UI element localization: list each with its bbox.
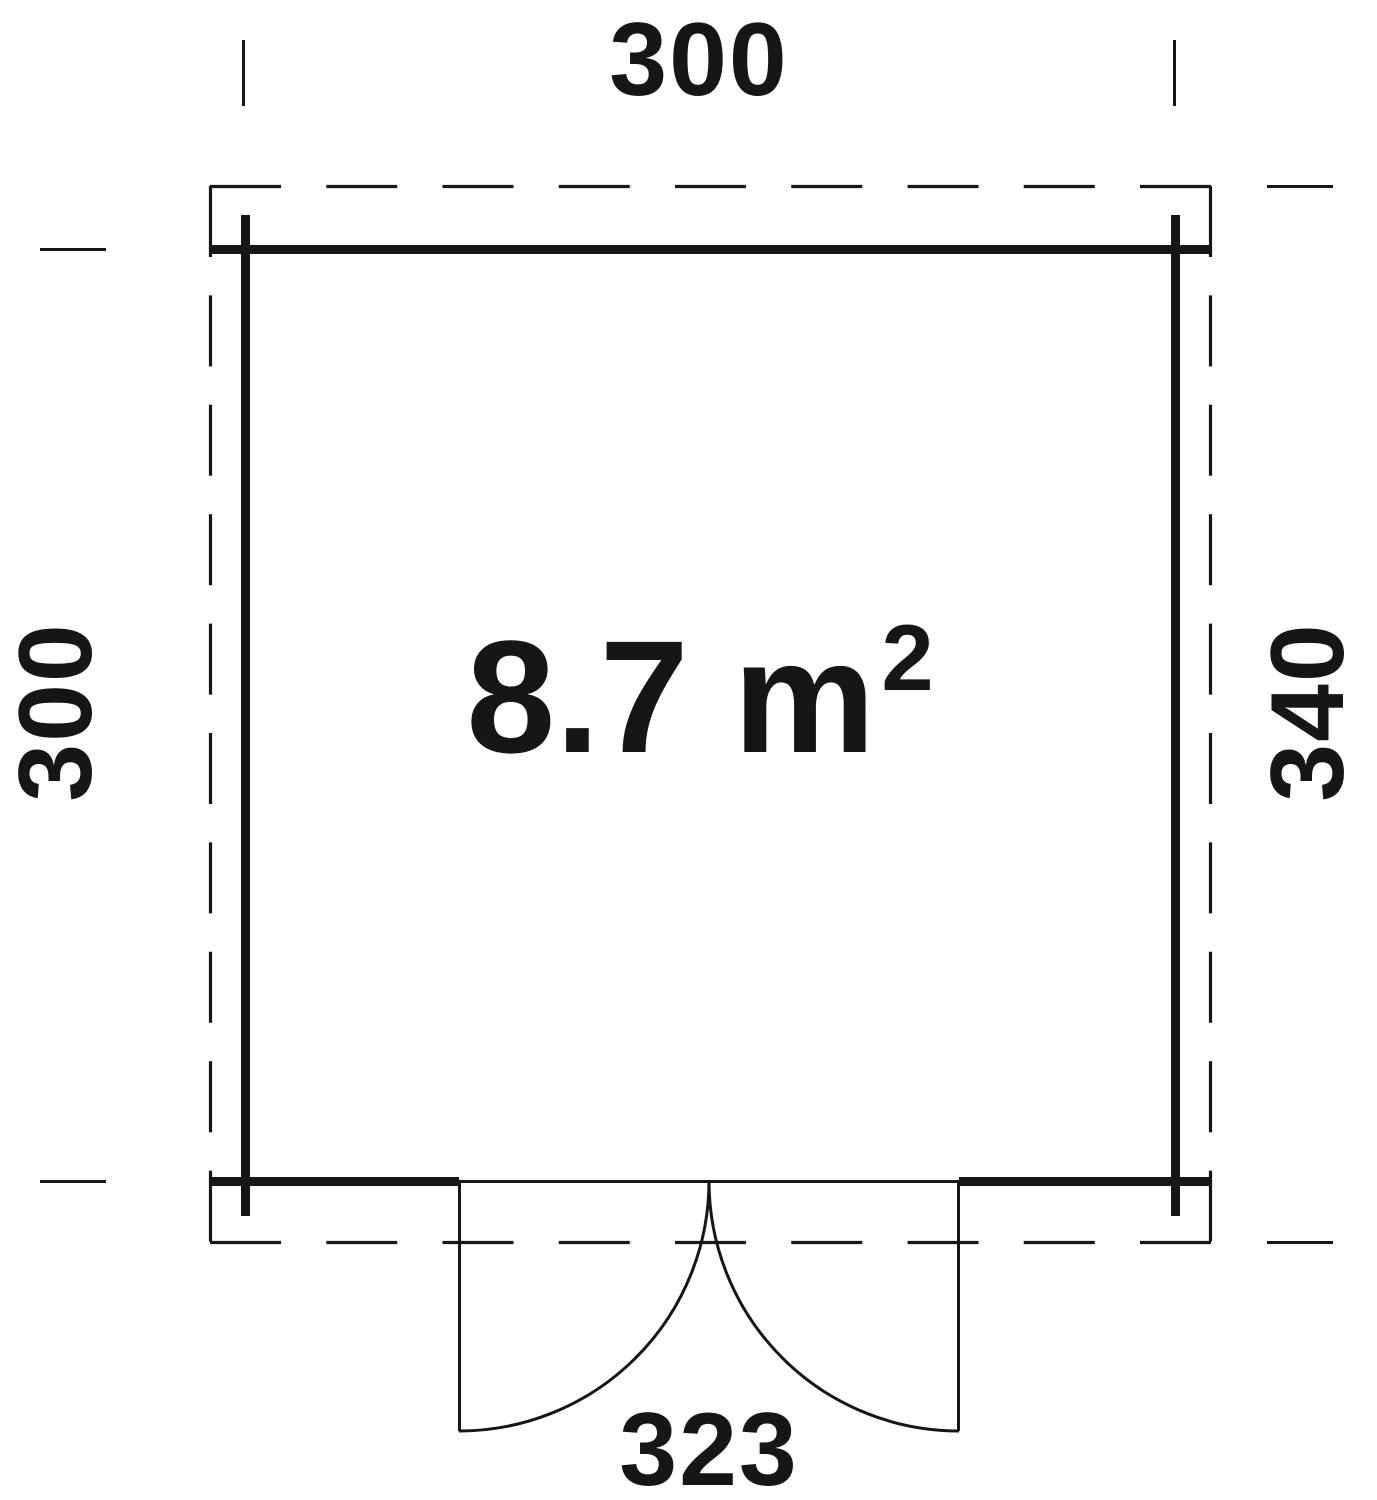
dimension-label-left-depth: 300 [4, 622, 108, 802]
floor-plan-canvas: 300 300 340 323 8.7 m2 [0, 0, 1377, 1500]
dimension-label-top-width: 300 [609, 8, 789, 112]
floor-area-label: 8.7 m2 [466, 617, 933, 777]
dimension-label-bottom-width: 323 [619, 1398, 799, 1500]
floor-area-superscript: 2 [881, 611, 933, 705]
dimension-label-right-height: 340 [1256, 622, 1360, 802]
floor-area-value: 8.7 m [466, 607, 875, 786]
